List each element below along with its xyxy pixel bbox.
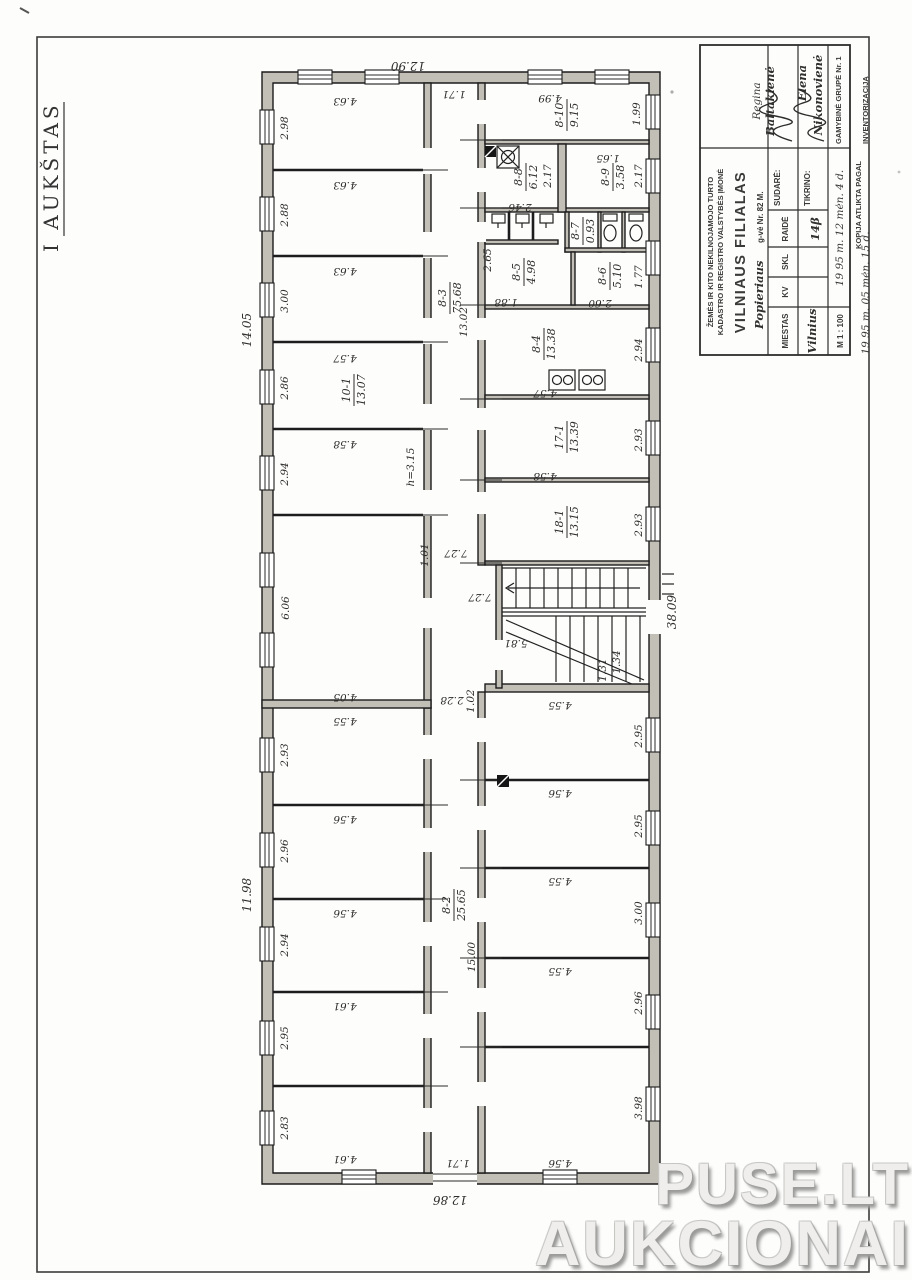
room-area: 13.07 [355, 374, 368, 406]
dim: 2.95 [279, 1026, 291, 1051]
dim: 2.94 [279, 462, 291, 486]
scanned-floor-plan-sheet: I AUKŠTAS [0, 0, 912, 1280]
floor-label-text: I AUKŠTAS [38, 101, 63, 252]
room-area: 6.12 [527, 165, 540, 190]
dim: 2.60 [588, 297, 613, 309]
corridor-top-labels: 8-3 75.68 13.02 1.71 [436, 88, 470, 337]
dim: 4.55 [548, 875, 573, 887]
room-dimensions-left-bottom: 4.55 4.56 4.56 4.61 4.61 2.93 2.96 2.94 … [279, 715, 358, 1165]
watermark-line1: PUSE.LT [535, 1157, 910, 1214]
watermark-line2: AUKCIONAI [535, 1214, 910, 1276]
dim: 2.28 [440, 694, 465, 706]
dim: 2.96 [633, 991, 645, 1016]
sudare-label: SUDARĖ: [773, 170, 782, 206]
dim: 2.95 [633, 724, 645, 749]
floor-label: I AUKŠTAS [38, 101, 64, 252]
door-openings [423, 100, 661, 1185]
dim: 6.06 [280, 596, 292, 620]
room-number: 8-5 [510, 263, 523, 281]
dim-overall-left-lower: 11.98 [240, 877, 254, 912]
floor-plan-drawing: I AUKŠTAS [0, 0, 912, 1280]
street-label: g-vė Nr. 82 M. [756, 191, 765, 243]
branch-name: VILNIAUS FILIALAS [733, 171, 749, 333]
scan-artifact [20, 8, 29, 13]
dim: 4.57 [333, 352, 358, 364]
dim: 4.55 [548, 699, 573, 711]
dim: 4.56 [548, 787, 573, 799]
org-name-line1: ŽEMĖS IR KITO NEKILNOJAMOJO TURTO [706, 177, 715, 328]
dim: 2.88 [279, 203, 291, 228]
room-dimensions-right-bottom: 4.55 4.56 4.55 4.55 4.56 2.95 2.95 3.00 … [548, 699, 645, 1169]
city-value: Vilnius [805, 308, 819, 354]
dim: 1.65 [596, 152, 620, 164]
room-number: 17-1 [553, 425, 566, 450]
title-block: ŽEMĖS IR KITO NEKILNOJAMOJO TURTO KADAST… [700, 45, 872, 355]
stair-bottom-wall [485, 684, 649, 692]
copy-object: INVENTORIZACIJĄ [861, 76, 870, 144]
dim: 13.02 [458, 307, 470, 337]
dim: 2.95 [633, 814, 645, 839]
vent-fan-icon [497, 146, 519, 168]
dim: 2.96 [279, 839, 291, 864]
room-area: 0.93 [584, 219, 597, 244]
dim: 3.00 [633, 901, 645, 925]
street-name-handwritten: Popieriaus [752, 260, 766, 330]
dim-overall-top: 12.90 [390, 59, 425, 73]
dim: 2.17 [633, 164, 645, 189]
partition [571, 252, 575, 305]
dim: 2.94 [279, 933, 291, 957]
room-dimensions-left-top: 4.63 4.63 4.63 4.57 4.58 2.98 2.88 3.00 … [279, 95, 417, 703]
scan-speck [670, 90, 673, 93]
dim: 4.63 [333, 265, 358, 277]
room-number: 8-8 [512, 168, 525, 186]
room-area: 25.65 [455, 889, 468, 922]
tikrino-last-name: Nikonovienė [811, 55, 825, 137]
dim: 3.98 [633, 1096, 645, 1120]
dim: 1.77 [633, 265, 645, 289]
partition [485, 478, 649, 482]
dim: 5.81 [504, 637, 527, 649]
copy-date: 19 95 m. 05 mėn. 15 d. [860, 231, 872, 354]
dim: 2.86 [279, 376, 291, 401]
partition [485, 395, 649, 399]
dim: 1.71 [442, 88, 465, 100]
dim: 7.27 [468, 591, 492, 603]
dim: 4.57 [533, 387, 558, 399]
room-area: 13.15 [568, 506, 581, 538]
partition [622, 212, 625, 252]
col-skl: SKL [781, 254, 790, 270]
dim: 2.94 [633, 338, 645, 362]
dim: 4.61 [333, 1000, 357, 1012]
room-number: 8-2 [440, 896, 453, 914]
dim: 2.98 [279, 116, 291, 141]
room-number: 8-6 [596, 267, 609, 285]
building-plan [260, 70, 674, 1185]
room-number: 10-1 [340, 378, 353, 403]
dim: 2.93 [633, 428, 645, 453]
room-number: 8-4 [530, 335, 543, 353]
sudare-first-name: Regina [751, 82, 763, 120]
room-number: 8-10 [553, 103, 566, 128]
room-area: 13.38 [545, 328, 558, 360]
dim: 4.61 [333, 1153, 357, 1165]
dim: 1.88 [494, 296, 518, 308]
col-kv: KV [781, 286, 790, 298]
dim: 4.55 [548, 965, 573, 977]
room-area: 13.39 [568, 421, 581, 453]
dim: 2.93 [279, 743, 291, 768]
partition [565, 248, 649, 252]
tikrino-first-name: Elena [795, 65, 809, 102]
partition [485, 561, 649, 565]
partition [598, 212, 601, 252]
dim-overall-left-upper: 14.05 [240, 313, 254, 347]
stove-icons [549, 370, 605, 390]
room-label-10-1: 10-1 13.07 [340, 374, 368, 406]
dim: 4.58 [533, 470, 558, 482]
org-name-line2: KADASTRO IR REGISTRO VALSTYBĖS ĮMONĖ [716, 169, 725, 336]
dim: 4.05 [333, 691, 358, 703]
dim: 4.99 [538, 92, 563, 104]
dim: 2.17 [542, 164, 554, 189]
room-number: 8-3 [436, 289, 449, 307]
dim: 2.65 [482, 248, 494, 273]
scan-speck [898, 171, 901, 174]
dim: 2.83 [279, 1116, 291, 1141]
dim: 2.93 [633, 513, 645, 538]
dim: 4.58 [333, 438, 358, 450]
overall-dimensions: 12.90 12.86 14.05 11.98 38.09 [240, 59, 679, 1207]
dim: 2.46 [508, 201, 533, 213]
date-made: 19 95 m. 12 mėn. 4 d. [834, 170, 846, 286]
room-number: 8-9 [599, 168, 612, 186]
dim: 1.31 [597, 658, 609, 681]
col-raide: RAIDĖ [781, 216, 790, 242]
tikrino-label: TIKRINO: [803, 170, 812, 206]
room-number: 8-7 [569, 222, 582, 240]
col-city: MIESTAS [781, 313, 790, 349]
dim: 1.02 [465, 689, 477, 713]
dim: 1.99 [631, 102, 643, 126]
partition [485, 240, 558, 244]
dim: 1.71 [446, 1157, 469, 1169]
room-area: 3.58 [614, 165, 627, 190]
corridor-bottom-labels: 8-2 25.65 15.00 1.71 [440, 889, 478, 1169]
partition [485, 140, 649, 144]
dim: 4.63 [333, 95, 358, 107]
raide-value: 14β [808, 217, 822, 241]
scale-value: M 1 : 100 [836, 314, 845, 348]
room-number: 18-1 [553, 510, 566, 535]
ceiling-height-note: h=3.15 [405, 447, 417, 486]
dim: 4.63 [333, 179, 358, 191]
watermark: PUSE.LT AUKCIONAI [535, 1157, 910, 1276]
dim: 7.27 [444, 547, 468, 559]
room-area: 5.10 [611, 264, 624, 289]
production-group: GAMYBINĖ GRUPĖ Nr. 1 [834, 56, 843, 144]
dim: 1.34 [611, 650, 623, 673]
dim: 3.00 [279, 289, 291, 313]
dim: 4.55 [333, 715, 358, 727]
dim: 1.01 [419, 543, 431, 566]
room-area: 4.98 [525, 260, 538, 286]
dim: 4.56 [333, 907, 358, 919]
dim-overall-right: 38.09 [665, 594, 679, 629]
dim-overall-bottom: 12.86 [432, 1193, 467, 1207]
partition [558, 144, 566, 212]
dim: 4.56 [333, 813, 358, 825]
room-area: 9.15 [568, 103, 581, 128]
dim: 15.00 [466, 942, 478, 972]
